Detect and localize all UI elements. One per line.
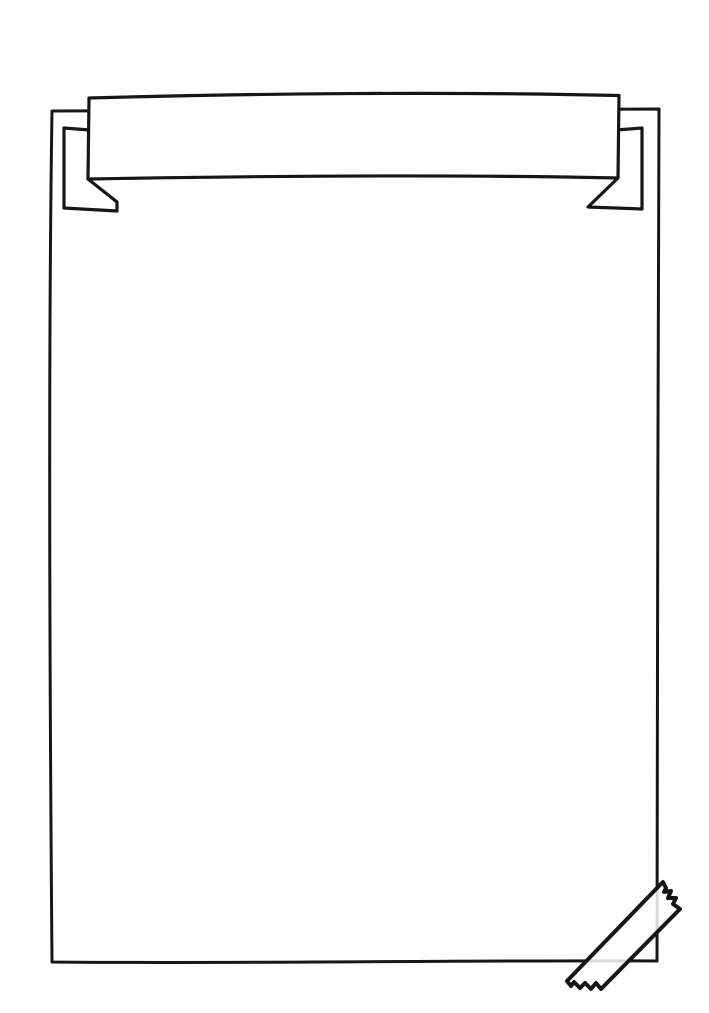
ribbon-banner-icon [88,93,619,179]
poster-paper-icon [50,109,659,963]
poster-template-canvas [0,0,709,1013]
line-art-drawing [0,0,709,1013]
